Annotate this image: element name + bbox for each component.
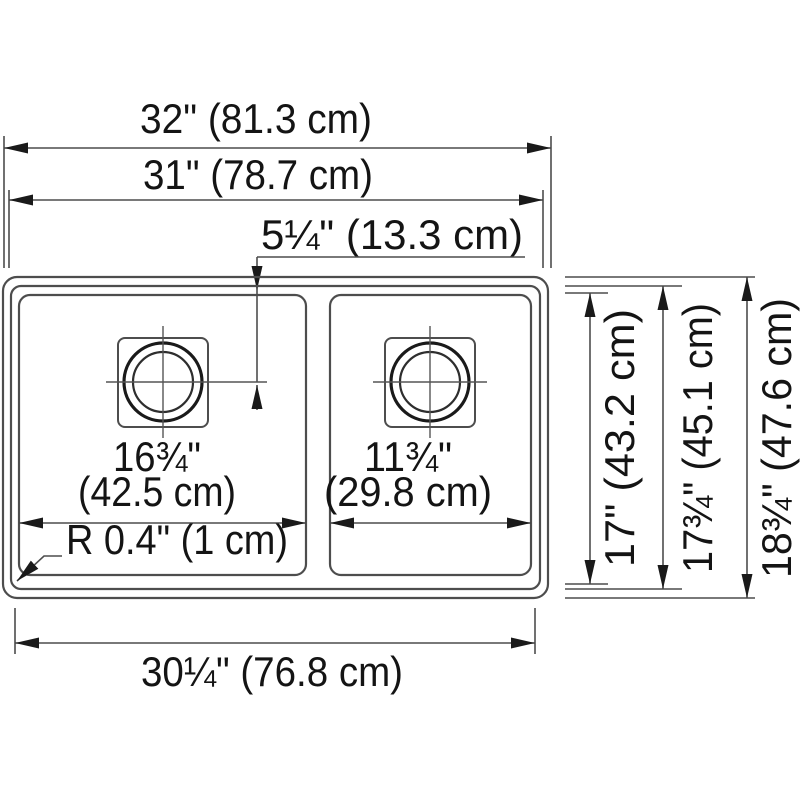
rim-depth-label: 17¾" (45.1 cm) xyxy=(674,303,721,573)
dim-right-bowl-width: 11¾" (29.8 cm) xyxy=(324,433,531,523)
dim-rim-depth: 17¾" (45.1 cm) xyxy=(565,286,721,589)
dim-left-bowl-width: 16¾" (42.5 cm) xyxy=(19,433,306,523)
leader-arrow xyxy=(17,556,62,581)
drain-offset-label: 5¼" (13.3 cm) xyxy=(261,211,523,258)
overall-depth-label: 18¾" (47.6 cm) xyxy=(753,298,800,578)
right-bowl-width-cm-label: (29.8 cm) xyxy=(324,468,492,515)
bottom-width-label: 30¼" (76.8 cm) xyxy=(141,648,403,695)
left-drain xyxy=(106,326,267,438)
right-drain xyxy=(373,326,487,438)
sink-dimension-diagram: 32" (81.3 cm) 31" (78.7 cm) 5¼" (13.3 cm… xyxy=(0,0,800,800)
rim-width-label: 31" (78.7 cm) xyxy=(143,151,373,198)
corner-radius-label: R 0.4" (1 cm) xyxy=(66,516,288,563)
left-bowl-width-cm-label: (42.5 cm) xyxy=(78,468,236,515)
dim-bottom-width: 30¼" (76.8 cm) xyxy=(15,608,535,695)
bowl-depth-label: 17" (43.2 cm) xyxy=(596,309,643,567)
corner-radius-callout: R 0.4" (1 cm) xyxy=(17,516,288,581)
dim-bowl-depth: 17" (43.2 cm) xyxy=(565,293,643,584)
overall-width-label: 32" (81.3 cm) xyxy=(140,95,372,142)
sink-dimension-drawing: 32" (81.3 cm) 31" (78.7 cm) 5¼" (13.3 cm… xyxy=(0,0,800,800)
